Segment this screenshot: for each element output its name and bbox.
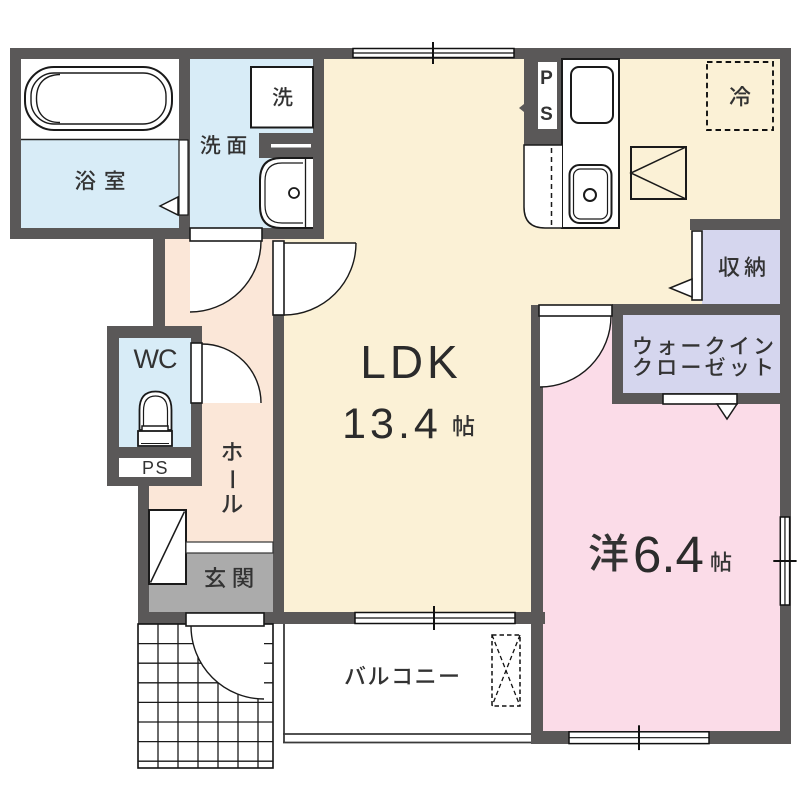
svg-text:13.4: 13.4 [342,400,442,448]
svg-text:S: S [540,104,553,125]
svg-text:6.4: 6.4 [633,526,704,583]
svg-text:PS: PS [142,458,169,478]
svg-text:P: P [540,68,553,89]
svg-text:WC: WC [134,344,177,374]
svg-text:LDK: LDK [360,336,461,388]
